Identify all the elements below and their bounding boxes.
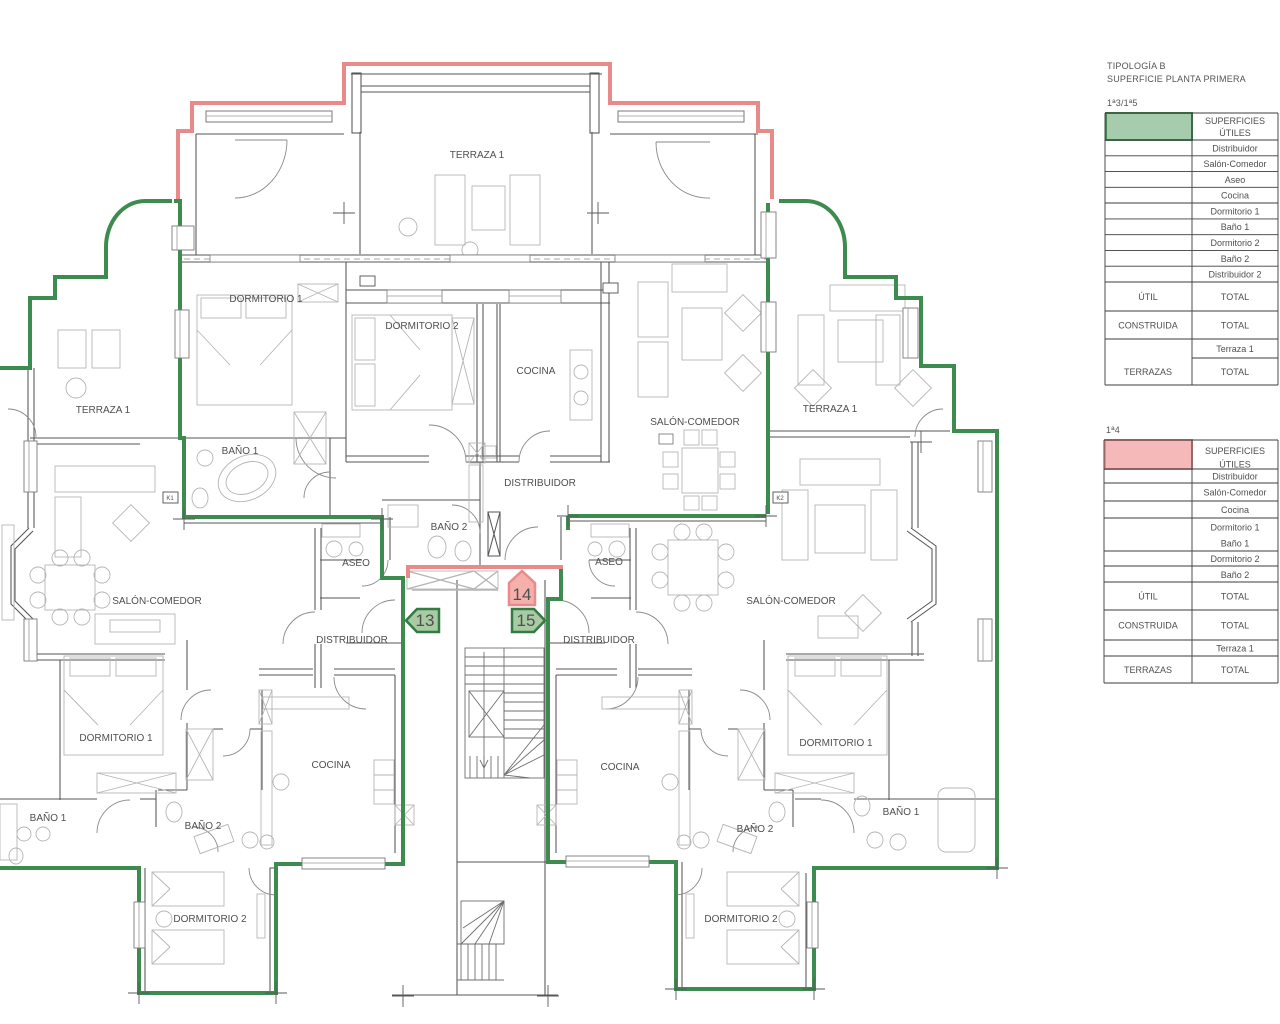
svg-text:Aseo: Aseo <box>1225 175 1246 185</box>
svg-text:13: 13 <box>416 611 435 630</box>
svg-text:BAÑO 1: BAÑO 1 <box>30 811 67 824</box>
svg-text:DORMITORIO 1: DORMITORIO 1 <box>229 294 303 305</box>
svg-text:DORMITORIO 2: DORMITORIO 2 <box>704 914 778 925</box>
svg-text:DISTRIBUIDOR: DISTRIBUIDOR <box>504 478 576 489</box>
svg-text:COCINA: COCINA <box>312 760 351 771</box>
svg-text:TOTAL: TOTAL <box>1221 367 1249 377</box>
svg-text:Dormitorio 2: Dormitorio 2 <box>1210 554 1259 564</box>
svg-text:CONSTRUIDA: CONSTRUIDA <box>1118 621 1178 631</box>
svg-text:ÚTIL: ÚTIL <box>1138 292 1158 302</box>
svg-text:COCINA: COCINA <box>517 366 556 377</box>
svg-text:Distribuidor: Distribuidor <box>1212 144 1258 154</box>
svg-text:BAÑO 2: BAÑO 2 <box>185 819 222 832</box>
svg-text:Baño 2: Baño 2 <box>1221 254 1250 264</box>
svg-text:SALÓN-COMEDOR: SALÓN-COMEDOR <box>112 594 201 607</box>
svg-text:SUPERFICIES: SUPERFICIES <box>1205 116 1265 126</box>
svg-text:BAÑO 2: BAÑO 2 <box>431 520 468 533</box>
svg-text:Baño 1: Baño 1 <box>1221 539 1250 549</box>
svg-text:Terraza 1: Terraza 1 <box>1216 644 1254 654</box>
svg-text:Distribuidor 2: Distribuidor 2 <box>1208 270 1261 280</box>
svg-text:Dormitorio 1: Dormitorio 1 <box>1210 523 1259 533</box>
svg-text:SALÓN-COMEDOR: SALÓN-COMEDOR <box>650 415 739 428</box>
svg-text:SALÓN-COMEDOR: SALÓN-COMEDOR <box>746 594 835 607</box>
svg-text:TERRAZAS: TERRAZAS <box>1124 665 1172 675</box>
svg-text:BAÑO 1: BAÑO 1 <box>883 805 920 818</box>
svg-text:Dormitorio 1: Dormitorio 1 <box>1210 207 1259 217</box>
svg-text:14: 14 <box>513 585 532 604</box>
svg-text:ÚTILES: ÚTILES <box>1219 460 1251 470</box>
svg-text:1ª3/1ª5: 1ª3/1ª5 <box>1107 98 1138 108</box>
svg-text:ASEO: ASEO <box>342 558 370 569</box>
svg-text:DORMITORIO 1: DORMITORIO 1 <box>79 733 153 744</box>
svg-text:Cocina: Cocina <box>1221 191 1249 201</box>
svg-text:DORMITORIO 2: DORMITORIO 2 <box>385 321 459 332</box>
svg-text:Baño 2: Baño 2 <box>1221 570 1250 580</box>
svg-text:TERRAZA 1: TERRAZA 1 <box>803 404 858 415</box>
svg-text:ÚTIL: ÚTIL <box>1138 592 1158 602</box>
svg-text:Terraza 1: Terraza 1 <box>1216 344 1254 354</box>
svg-text:TERRAZA 1: TERRAZA 1 <box>76 405 131 416</box>
svg-text:Salón-Comedor: Salón-Comedor <box>1203 159 1266 169</box>
svg-text:SUPERFICIE PLANTA PRIMERA: SUPERFICIE PLANTA PRIMERA <box>1107 74 1246 84</box>
svg-text:TIPOLOGÍA B: TIPOLOGÍA B <box>1107 61 1166 71</box>
svg-text:SUPERFICIES: SUPERFICIES <box>1205 446 1265 456</box>
svg-text:TOTAL: TOTAL <box>1221 621 1249 631</box>
svg-text:15: 15 <box>517 611 536 630</box>
svg-text:TOTAL: TOTAL <box>1221 321 1249 331</box>
svg-text:DORMITORIO 1: DORMITORIO 1 <box>799 738 873 749</box>
svg-text:K2: K2 <box>776 496 784 502</box>
svg-text:TOTAL: TOTAL <box>1221 292 1249 302</box>
svg-text:CONSTRUIDA: CONSTRUIDA <box>1118 321 1178 331</box>
svg-text:Dormitorio 2: Dormitorio 2 <box>1210 238 1259 248</box>
svg-text:COCINA: COCINA <box>601 762 640 773</box>
svg-text:1ª4: 1ª4 <box>1106 425 1120 435</box>
svg-text:K1: K1 <box>166 496 174 502</box>
svg-text:BAÑO 2: BAÑO 2 <box>737 822 774 835</box>
svg-text:TERRAZA 1: TERRAZA 1 <box>450 150 505 161</box>
svg-text:DORMITORIO 2: DORMITORIO 2 <box>173 914 247 925</box>
svg-text:Cocina: Cocina <box>1221 505 1249 515</box>
svg-text:Salón-Comedor: Salón-Comedor <box>1203 488 1266 498</box>
svg-text:TOTAL: TOTAL <box>1221 592 1249 602</box>
svg-text:Baño 1: Baño 1 <box>1221 222 1250 232</box>
svg-text:BAÑO 1: BAÑO 1 <box>222 444 259 457</box>
svg-text:ÚTILES: ÚTILES <box>1219 128 1251 138</box>
svg-text:ASEO: ASEO <box>595 557 623 568</box>
svg-text:TERRAZAS: TERRAZAS <box>1124 367 1172 377</box>
svg-text:Distribuidor: Distribuidor <box>1212 472 1258 482</box>
svg-text:DISTRIBUIDOR: DISTRIBUIDOR <box>316 635 388 646</box>
svg-text:DISTRIBUIDOR: DISTRIBUIDOR <box>563 635 635 646</box>
svg-text:TOTAL: TOTAL <box>1221 665 1249 675</box>
